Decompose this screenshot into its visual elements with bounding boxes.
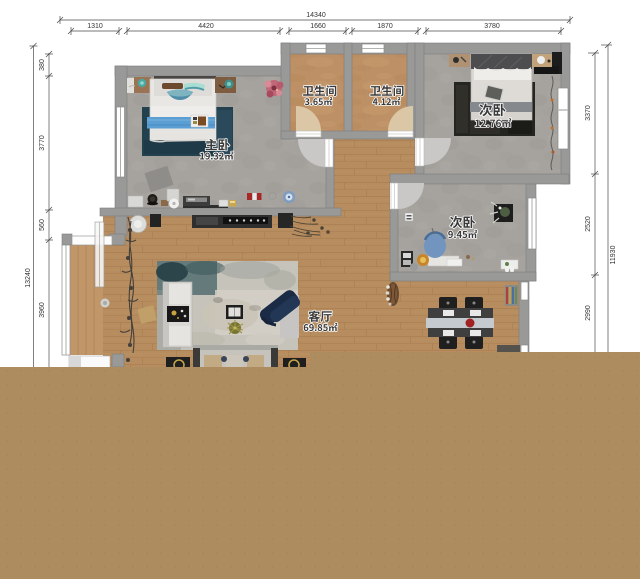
svg-text:1660: 1660: [310, 23, 326, 30]
svg-text:4420: 4420: [198, 23, 214, 30]
svg-text:2990: 2990: [585, 305, 592, 321]
svg-text:3960: 3960: [39, 302, 46, 318]
svg-text:1310: 1310: [87, 23, 103, 30]
svg-text:14340: 14340: [306, 12, 326, 19]
svg-text:1870: 1870: [377, 23, 393, 30]
svg-text:560: 560: [39, 219, 46, 231]
svg-text:380: 380: [39, 59, 46, 71]
svg-text:13240: 13240: [25, 268, 32, 288]
svg-text:2520: 2520: [585, 216, 592, 232]
svg-text:3780: 3780: [484, 23, 500, 30]
svg-text:3370: 3370: [585, 105, 592, 121]
svg-text:3770: 3770: [39, 135, 46, 151]
svg-text:11930: 11930: [610, 245, 617, 264]
